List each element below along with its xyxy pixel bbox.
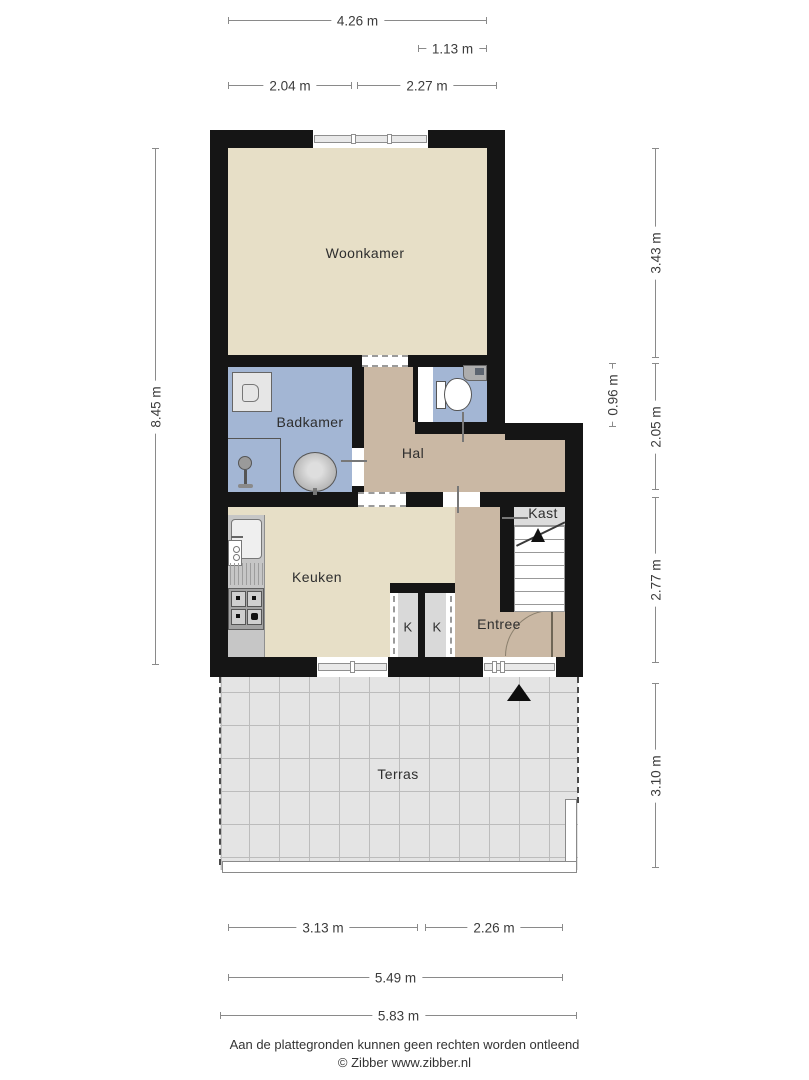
closet-front-dashed-line [450,596,452,654]
stove-burner-icon [247,591,262,607]
window-mullion [350,661,355,672]
door-frame-tick [457,486,459,513]
terras-dashed-edge [219,677,221,865]
room-label-badkamer: Badkamer [276,414,343,430]
shower-enclosure [228,438,281,492]
door-frame-tick [502,517,528,519]
terras-border-strip [222,861,577,873]
window-glass [314,135,427,142]
room-keuken-floor [390,507,455,583]
room-label-woonkamer: Woonkamer [326,245,405,261]
wall-segment [415,422,505,434]
room-entree-floor [455,507,500,657]
wall-segment [565,423,583,677]
opening-woonkamer-hal [362,355,408,367]
toilet-sink-basin-icon [475,368,484,375]
wall-segment [210,130,228,677]
kitchen-tap-icon [231,536,243,538]
washing-machine-door-icon [242,384,259,402]
door-frame-tick [462,412,464,442]
badkamer-door-opening [352,448,364,486]
dimension-right-terras: 3.10 m [655,683,656,868]
toilet-bowl-icon [444,378,472,411]
room-label-kast: Kast [528,505,558,521]
dimension-label: 4.26 m [331,14,384,29]
room-hal-floor [418,434,505,492]
dimension-label: 2.27 m [400,79,453,94]
dimension-label: 2.77 m [649,553,664,606]
dimension-right-woonkamer: 3.43 m [655,148,656,358]
entrance-marker-icon [507,684,531,701]
wall-segment [487,130,505,434]
floorplan-canvas: Woonkamer Badkamer Hal Keuken K K Entree… [0,0,809,1080]
terras-dashed-edge [577,677,579,803]
dimension-label: 1.13 m [426,42,479,57]
dimension-top-right-part: 1.13 m [418,48,487,49]
dimension-bottom-overall: 5.83 m [220,1015,577,1016]
dimension-label: 3.10 m [649,749,664,802]
shower-drain-icon [238,484,253,488]
entree-front-door [483,657,556,677]
shower-stem-icon [244,470,247,484]
kitchen-stove-icon [228,588,264,630]
wall-segment [390,583,455,593]
stairs-up-arrow-icon [531,528,545,542]
footer-disclaimer: Aan de plattegronden kunnen geen rechten… [0,1037,809,1052]
dimension-label: 2.04 m [263,79,316,94]
window-mullion [500,661,505,672]
wall-segment [418,593,425,657]
wall-segment [228,355,488,367]
boiler-knob-icon [233,554,240,561]
badkamer-sink-icon [293,452,337,492]
dimension-left-overall: 8.45 m [155,148,156,665]
dimension-top-mid-part: 2.27 m [357,85,497,86]
opening-hal-entree [443,492,480,507]
dimension-bottom-right-part: 2.26 m [425,927,563,928]
toilet-door-opening [418,367,433,422]
dimension-bottom-left-part: 3.13 m [228,927,418,928]
boiler-knob-icon [233,546,240,553]
door-frame-tick [341,460,367,462]
window-mullion [387,134,392,144]
terras-border-strip [565,799,577,863]
shower-head-icon [238,456,252,470]
dimension-label: 5.49 m [369,971,422,986]
room-label-closet-k-left: K [403,620,412,635]
dimension-label: 3.13 m [296,921,349,936]
dimension-label: 5.83 m [372,1009,425,1024]
toilet-sink-icon [463,365,487,381]
stove-burner-icon [231,609,246,625]
woonkamer-window [313,130,428,148]
room-label-terras: Terras [377,766,418,782]
dimension-label: 2.26 m [467,921,520,936]
closet-front-dashed-line [393,596,395,654]
dimension-top-left-part: 2.04 m [228,85,352,86]
washing-machine-icon [232,372,272,412]
footer-copyright: © Zibber www.zibber.nl [0,1055,809,1070]
stove-burner-icon [247,609,262,625]
room-label-keuken: Keuken [292,569,342,585]
dimension-bottom-inner: 5.49 m [228,977,563,978]
room-hal-floor [364,367,418,492]
opening-hal-keuken [358,492,406,507]
dimension-top-overall: 4.26 m [228,20,487,21]
dimension-label: 2.05 m [649,400,664,453]
window-mullion [351,134,356,144]
window-mullion [492,661,497,672]
room-label-closet-k-right: K [432,620,441,635]
dimension-right-hal: 2.05 m [655,363,656,490]
badkamer-sink-tap-icon [313,488,317,495]
dimension-label: 0.96 m [606,368,621,421]
dimension-label: 3.43 m [649,226,664,279]
keuken-window [317,657,388,677]
room-hal-floor [505,440,565,492]
wall-segment [500,505,514,612]
kitchen-drainer-icon [230,563,263,585]
dimension-right-toilet: 0.96 m [612,363,613,427]
dimension-label: 8.45 m [149,380,164,433]
dimension-right-keuken: 2.77 m [655,497,656,663]
entree-door-leaf [551,610,553,657]
room-label-hal: Hal [402,445,424,461]
room-label-entree: Entree [477,616,521,632]
stove-burner-icon [231,591,246,607]
